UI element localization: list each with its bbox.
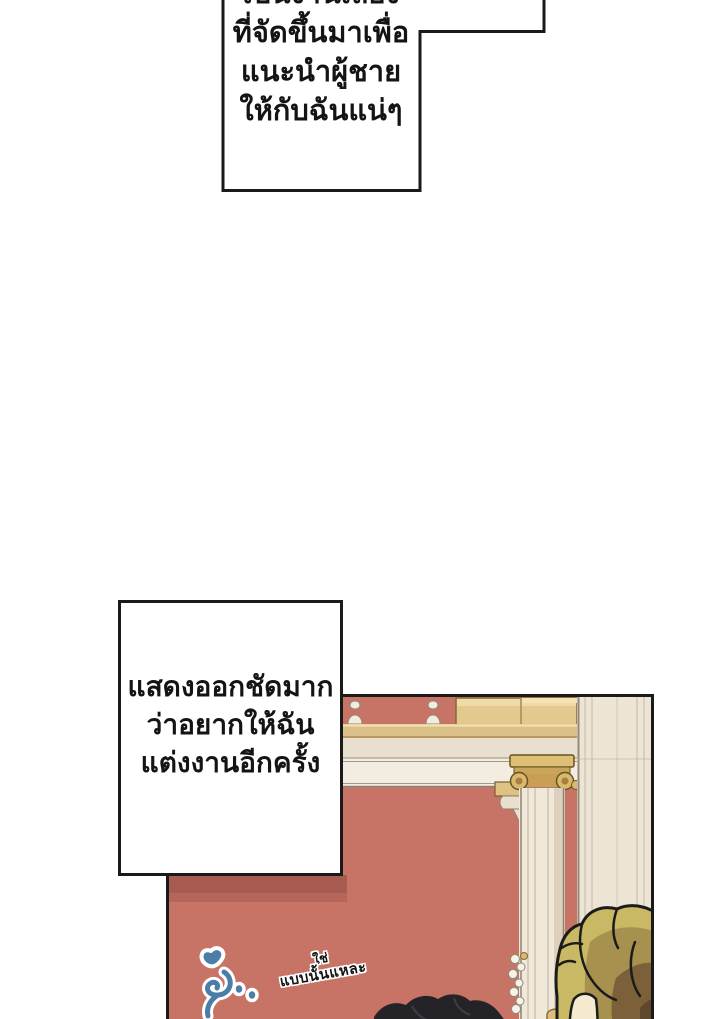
bubble-top-line-3: แนะนำผู้ชาย: [222, 52, 420, 91]
sob-sfx-icon: [186, 938, 264, 1019]
speech-bubble-top: เป็นงานเลี้ยง ที่จัดขึ้นมาเพื่อ แนะนำผู้…: [222, 0, 420, 130]
bubble-middle-line-1: แสดงออกชัดมาก: [128, 668, 334, 706]
comic-page: ใช่ แบบนั้นแหละ เป็นงานเลี้ยง ที่จัดขึ้น…: [0, 0, 720, 1019]
bubble-middle-line-2: ว่าอยากให้ฉัน: [147, 706, 315, 744]
golden-railing-box: [456, 698, 577, 725]
wall-shadow-band: [169, 875, 347, 902]
bubble-top-line-4: ให้กับฉันแน่ๆ: [222, 91, 420, 130]
speech-bubble-middle: แสดงออกชัดมาก ว่าอยากให้ฉัน แต่งงานอีกคร…: [118, 600, 343, 876]
bubble-top-line-1: เป็นงานเลี้ยง: [222, 0, 420, 13]
bubble-middle-line-3: แต่งงานอีกครั้ง: [141, 744, 321, 782]
bubble-top-line-2: ที่จัดขึ้นมาเพื่อ: [222, 13, 420, 52]
